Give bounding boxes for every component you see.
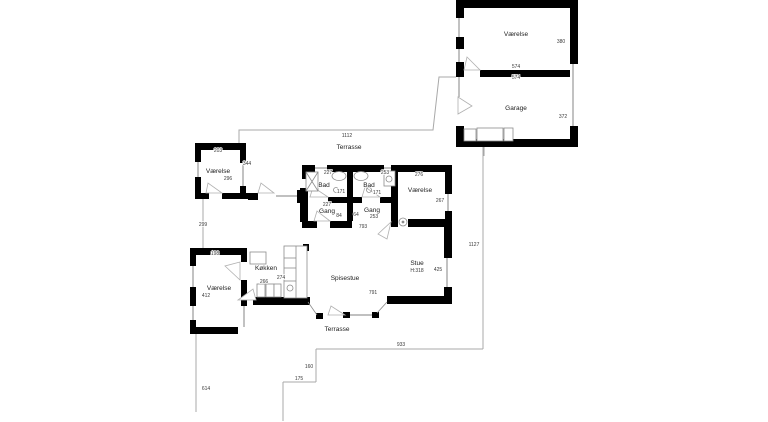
- dim-bad2-171: 171: [373, 190, 382, 196]
- dim-175: 175: [295, 376, 304, 382]
- dim-ulv-344: 344: [243, 161, 252, 167]
- kitchen-cabinet-1: [257, 284, 265, 297]
- dim-84: 84: [336, 213, 342, 219]
- stue-floor-symbol-dot: [402, 221, 404, 223]
- label-bad2: Bad: [363, 182, 375, 189]
- garage-cabinet-2: [477, 128, 503, 141]
- floor-plan-canvas: Værelse380574574Garage372Terrasse1112Vær…: [0, 0, 768, 422]
- dim-divider-top: 574: [512, 64, 521, 70]
- stue-bottom-wall: [387, 296, 452, 304]
- dim-1127: 1127: [469, 242, 480, 248]
- dim-garage-bldg-vaerelse: 380: [557, 39, 566, 45]
- bad1-bathtub: [332, 172, 346, 181]
- label-terrasse-top: Terrasse: [337, 144, 362, 151]
- gang-divider-wall: [347, 197, 353, 221]
- dim-64: 64: [353, 212, 359, 218]
- center-left-wall-lower: [300, 188, 308, 222]
- label-terrasse-bottom: Terrasse: [325, 326, 350, 333]
- label-spisestue: Spisestue: [331, 275, 360, 282]
- kitchen-cabinet-3: [274, 284, 281, 297]
- label-gang1: Gang: [319, 208, 335, 215]
- dim-blv-198: 198: [211, 251, 220, 257]
- gang-bottom-wall-1: [302, 221, 317, 228]
- entry-wardrobe: [250, 252, 266, 264]
- dim-stue-h318: H:318: [410, 268, 424, 274]
- blv-left-wall-1: [190, 248, 196, 266]
- dim-blv-412: 412: [202, 293, 211, 299]
- house-right-wall-mid: [445, 211, 452, 227]
- garage-right-wall-upper: [570, 0, 578, 64]
- dim-divider-bottom: 574: [512, 75, 521, 81]
- label-gang2: Gang: [364, 207, 380, 214]
- dim-791: 791: [369, 290, 378, 296]
- dim-bad1-227: 227: [324, 170, 333, 176]
- label-blv-vaerelse: Værelse: [207, 285, 232, 292]
- label-ulv-vaerelse: Værelse: [206, 168, 231, 175]
- label-stue: Stue: [410, 260, 424, 267]
- dim-vc-276: 276: [415, 172, 424, 178]
- bad-divider-wall: [347, 165, 353, 197]
- garage-left-wall-2: [456, 37, 464, 49]
- bad2-bathtub: [354, 172, 368, 181]
- gang-bottom-wall-2: [330, 221, 352, 228]
- badgang-wall-3: [380, 197, 391, 203]
- garage-divider-wall: [480, 70, 570, 77]
- dim-160: 160: [305, 364, 314, 370]
- garage-left-wall-4: [456, 126, 464, 147]
- garage-left-wall-1: [456, 0, 464, 18]
- stue-right-wall-upper: [444, 227, 452, 258]
- terrace-post-3: [316, 313, 323, 319]
- label-garage-bldg-vaerelse: Værelse: [504, 31, 529, 38]
- dim-ulv-296: 296: [224, 176, 233, 182]
- center-top-wall-3: [391, 165, 452, 172]
- garage-top-wall: [456, 0, 578, 8]
- label-bad1: Bad: [318, 182, 330, 189]
- ulv-left-wall-1: [195, 143, 201, 162]
- floor-plan-page: Værelse380574574Garage372Terrasse1112Vær…: [0, 0, 768, 422]
- blv-bottom-wall: [190, 327, 238, 334]
- plan-background: [0, 0, 768, 422]
- blv-right-wall-2: [241, 280, 247, 306]
- garage-left-wall-3: [456, 62, 464, 77]
- ulv-bottom-wall-1: [195, 193, 209, 199]
- center-top-wall-2: [327, 165, 384, 172]
- dim-gang2-253: 253: [370, 214, 379, 220]
- terrace-post-1: [372, 312, 379, 318]
- garage-cabinet-1: [464, 129, 476, 141]
- dim-614: 614: [202, 386, 211, 392]
- ulv-right-wall-1: [240, 143, 246, 163]
- house-right-wall-upper: [445, 165, 452, 194]
- blv-top-wall: [196, 248, 247, 255]
- blv-right-wall-1: [241, 248, 247, 262]
- dim-gang1-227: 227: [323, 202, 332, 208]
- label-garage: Garage: [505, 105, 527, 112]
- dim-1112: 1112: [342, 133, 353, 139]
- garage-cabinet-3: [504, 128, 513, 141]
- dim-stue-425: 425: [434, 267, 443, 273]
- dim-bad1-171: 171: [337, 189, 346, 195]
- dim-vc-267: 267: [436, 198, 445, 204]
- dim-kk-266: 266: [260, 279, 269, 285]
- dim-933: 933: [397, 342, 406, 348]
- dim-garage: 372: [559, 114, 568, 120]
- dim-793: 793: [359, 224, 368, 230]
- label-vaerelse-center: Værelse: [408, 187, 433, 194]
- dim-kk-274: 274: [277, 275, 286, 281]
- dim-299: 299: [199, 222, 208, 228]
- north-wall-1: [248, 193, 258, 200]
- dim-bad2-253: 253: [381, 170, 390, 176]
- kitchen-cabinet-2: [266, 284, 274, 297]
- label-koekken: Køkken: [255, 265, 277, 272]
- blv-left-wall-2: [190, 287, 196, 306]
- ulv-bottom-wall-2: [222, 193, 248, 199]
- dim-ulv-203: 203: [214, 148, 223, 154]
